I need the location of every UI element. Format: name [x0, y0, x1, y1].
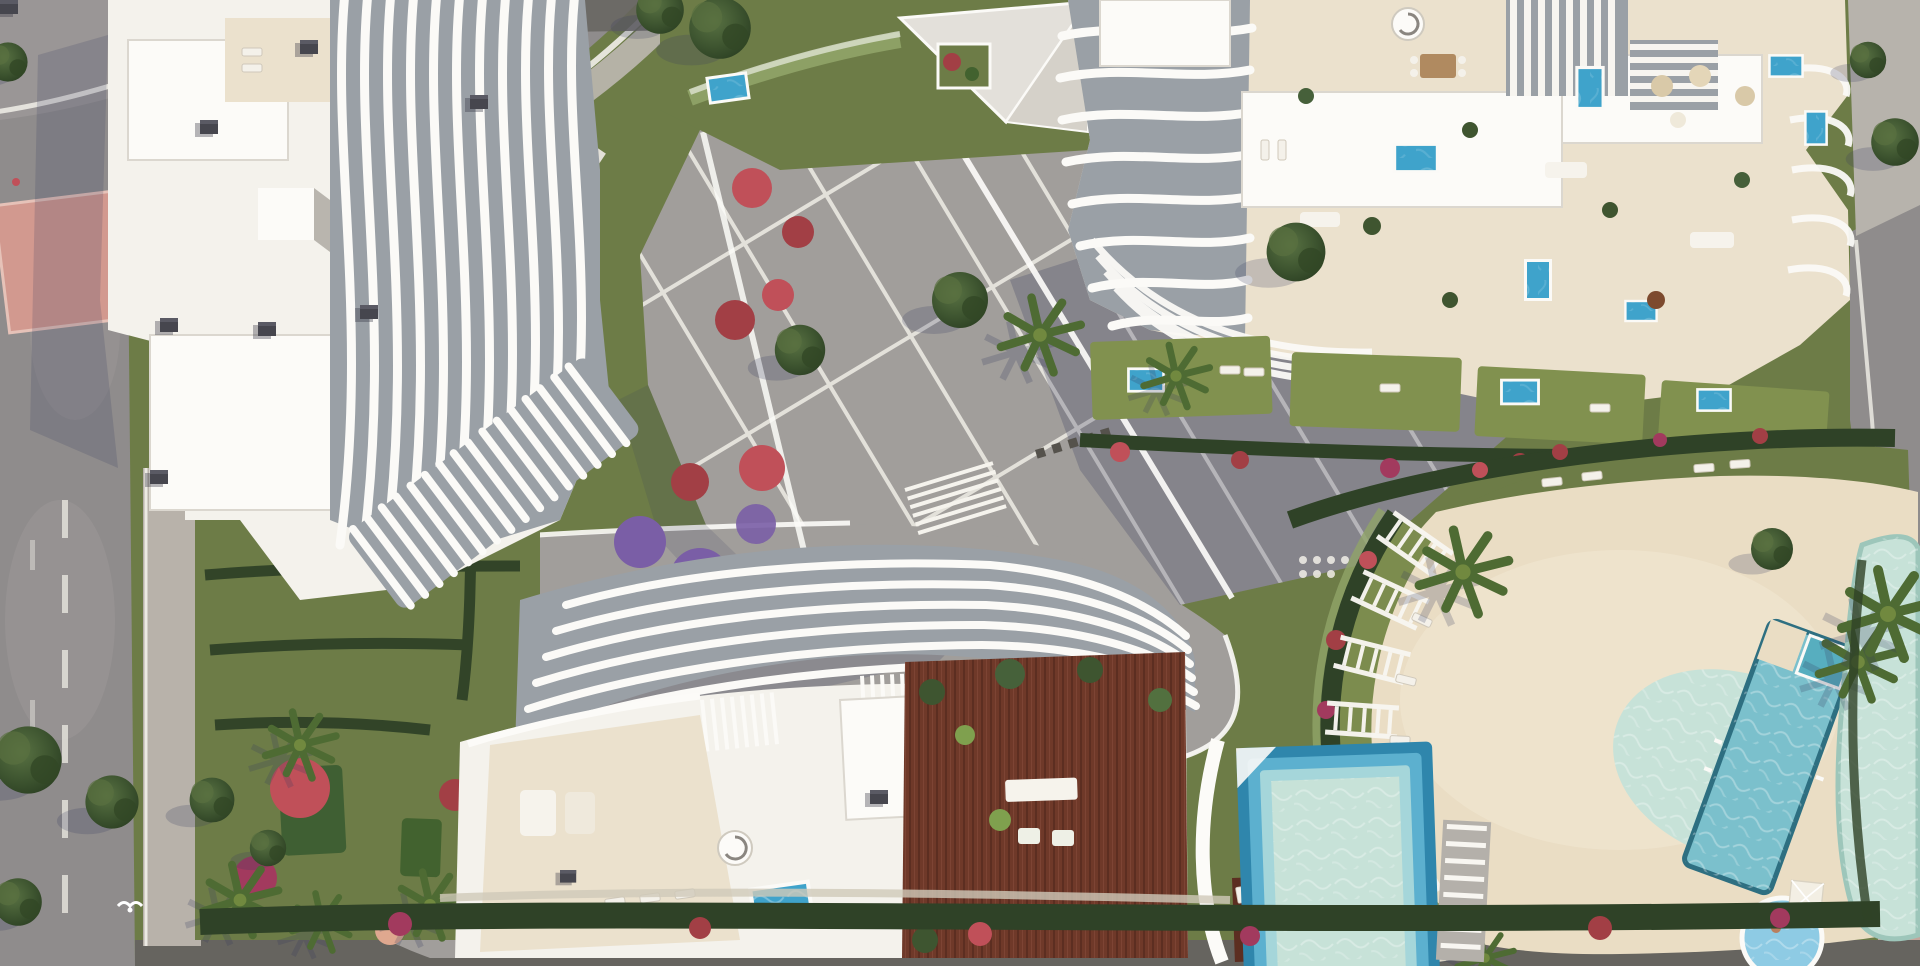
aerial-render: Aerial top-down render of a seafront res… [0, 0, 1920, 966]
roof-terrace [225, 18, 343, 102]
render-canvas [0, 0, 1920, 966]
deck-table [1005, 777, 1078, 801]
louver-stairs [1436, 820, 1491, 962]
daybed [520, 790, 556, 836]
spiral-stair-south [718, 831, 752, 865]
street-furniture [12, 178, 20, 186]
west-sidewalk [143, 468, 201, 946]
spiral-stair [1392, 8, 1424, 40]
roof-pergola-1 [1506, 0, 1628, 96]
infinity-pool [1236, 741, 1440, 966]
courtyard-plunge-pool [705, 71, 750, 105]
garden-pergola-2 [400, 818, 442, 877]
